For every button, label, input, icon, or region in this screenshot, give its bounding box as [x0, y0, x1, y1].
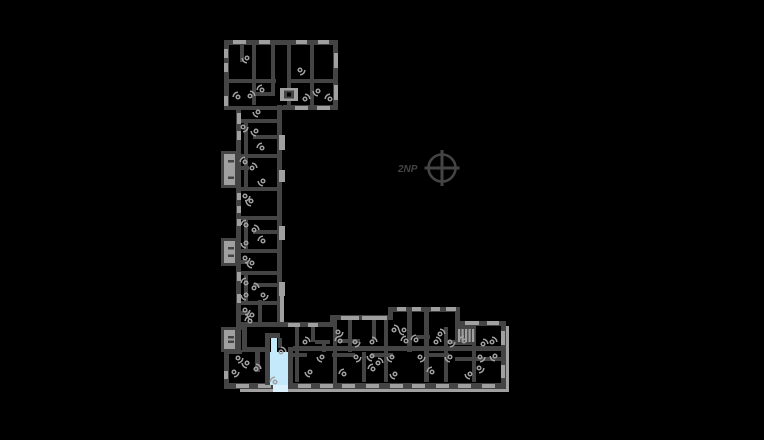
svg-text:2NP: 2NP [397, 164, 418, 175]
